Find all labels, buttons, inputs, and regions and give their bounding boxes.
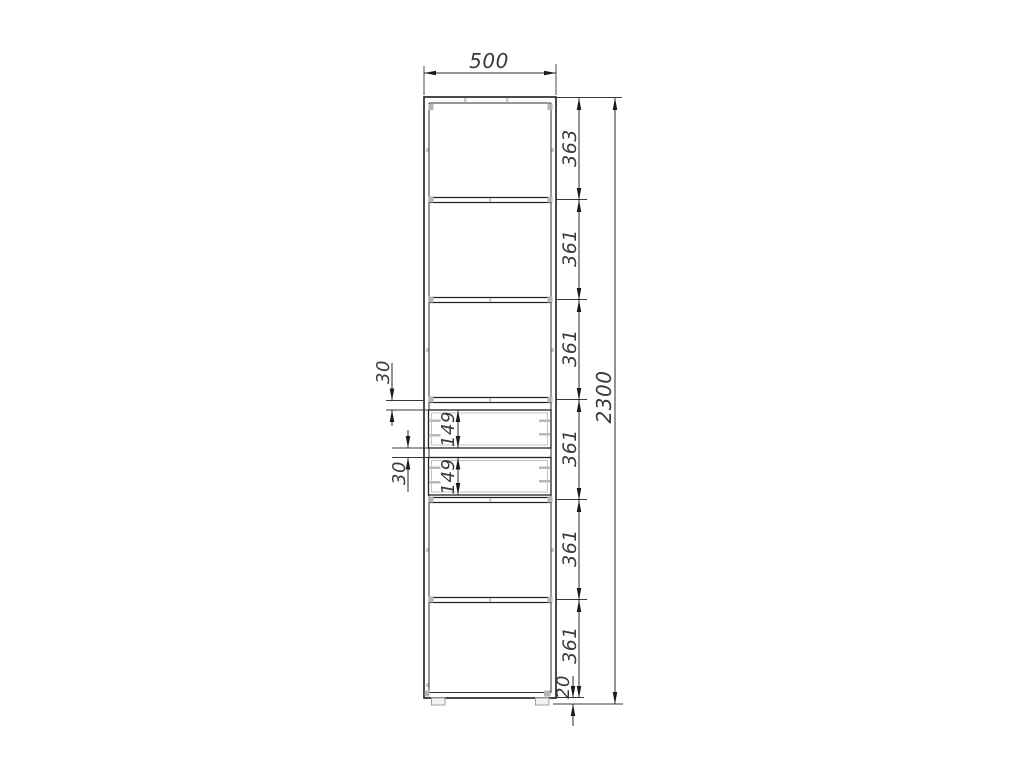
cam-fitting [548,197,553,203]
dowel-tick [426,348,429,352]
section-dim-label: 363 [559,129,581,167]
drawer-slide [539,433,550,436]
cam-fitting [548,104,553,110]
foot [536,698,550,705]
dim-plinth: 20 [553,675,574,726]
dowel-tick [426,148,429,152]
foot [432,698,446,705]
plinth-dim-label: 20 [553,675,574,699]
cam-fitting [548,297,553,303]
dowel-tick [464,98,467,102]
gap-dim-label: 30 [373,360,394,384]
section-dim-label: 361 [559,429,581,467]
dowel-tick [552,148,555,152]
cam-fitting [425,691,430,697]
section-dim-label: 361 [559,229,581,267]
section-dim-label: 361 [559,529,581,567]
dim-gap-lower: 30 [389,430,429,492]
dowel-tick [552,348,555,352]
cam-fitting [548,597,553,603]
section-dim-label: 361 [559,329,581,367]
cam-fitting [429,104,434,110]
dim-drawer-lower: 149 [438,458,459,496]
cam-fitting [429,197,434,203]
dowel-tick [426,548,429,552]
dowel-tick [489,399,492,402]
cabinet-technical-drawing: 500 363 361 361 361 361 361 2300 [0,0,1024,768]
dim-total-height: 2300 [553,98,623,704]
dim-drawer-upper: 149 [438,410,459,448]
gap-dim-label: 30 [389,461,410,485]
dowel-tick [552,548,555,552]
drawer-slide [539,467,550,470]
dim-gap-upper: 30 [373,360,429,426]
section-dim-label: 361 [559,626,581,664]
drawer-height-dim-label: 149 [438,459,459,495]
cam-fitting [544,691,551,697]
total-height-dim-label: 2300 [592,371,616,424]
drawer-slide [539,480,550,483]
dowel-tick [489,199,492,202]
dowel-tick [489,299,492,302]
cam-fitting [429,497,434,503]
cam-fitting [429,397,434,403]
width-dim-label: 500 [469,49,509,73]
drawing-canvas: 500 363 361 361 361 361 361 2300 [0,0,1024,768]
dowel-tick [489,499,492,502]
cam-fitting [429,297,434,303]
drawer-slide [539,420,550,423]
dowel-tick [489,599,492,602]
cabinet-body [424,97,556,705]
cam-fitting [548,497,553,503]
cam-fitting [548,397,553,403]
dowel-tick [426,683,429,687]
cam-fitting [429,597,434,603]
dim-width: 500 [424,49,556,95]
dowel-tick [506,98,509,102]
drawer-height-dim-label: 149 [438,411,459,447]
